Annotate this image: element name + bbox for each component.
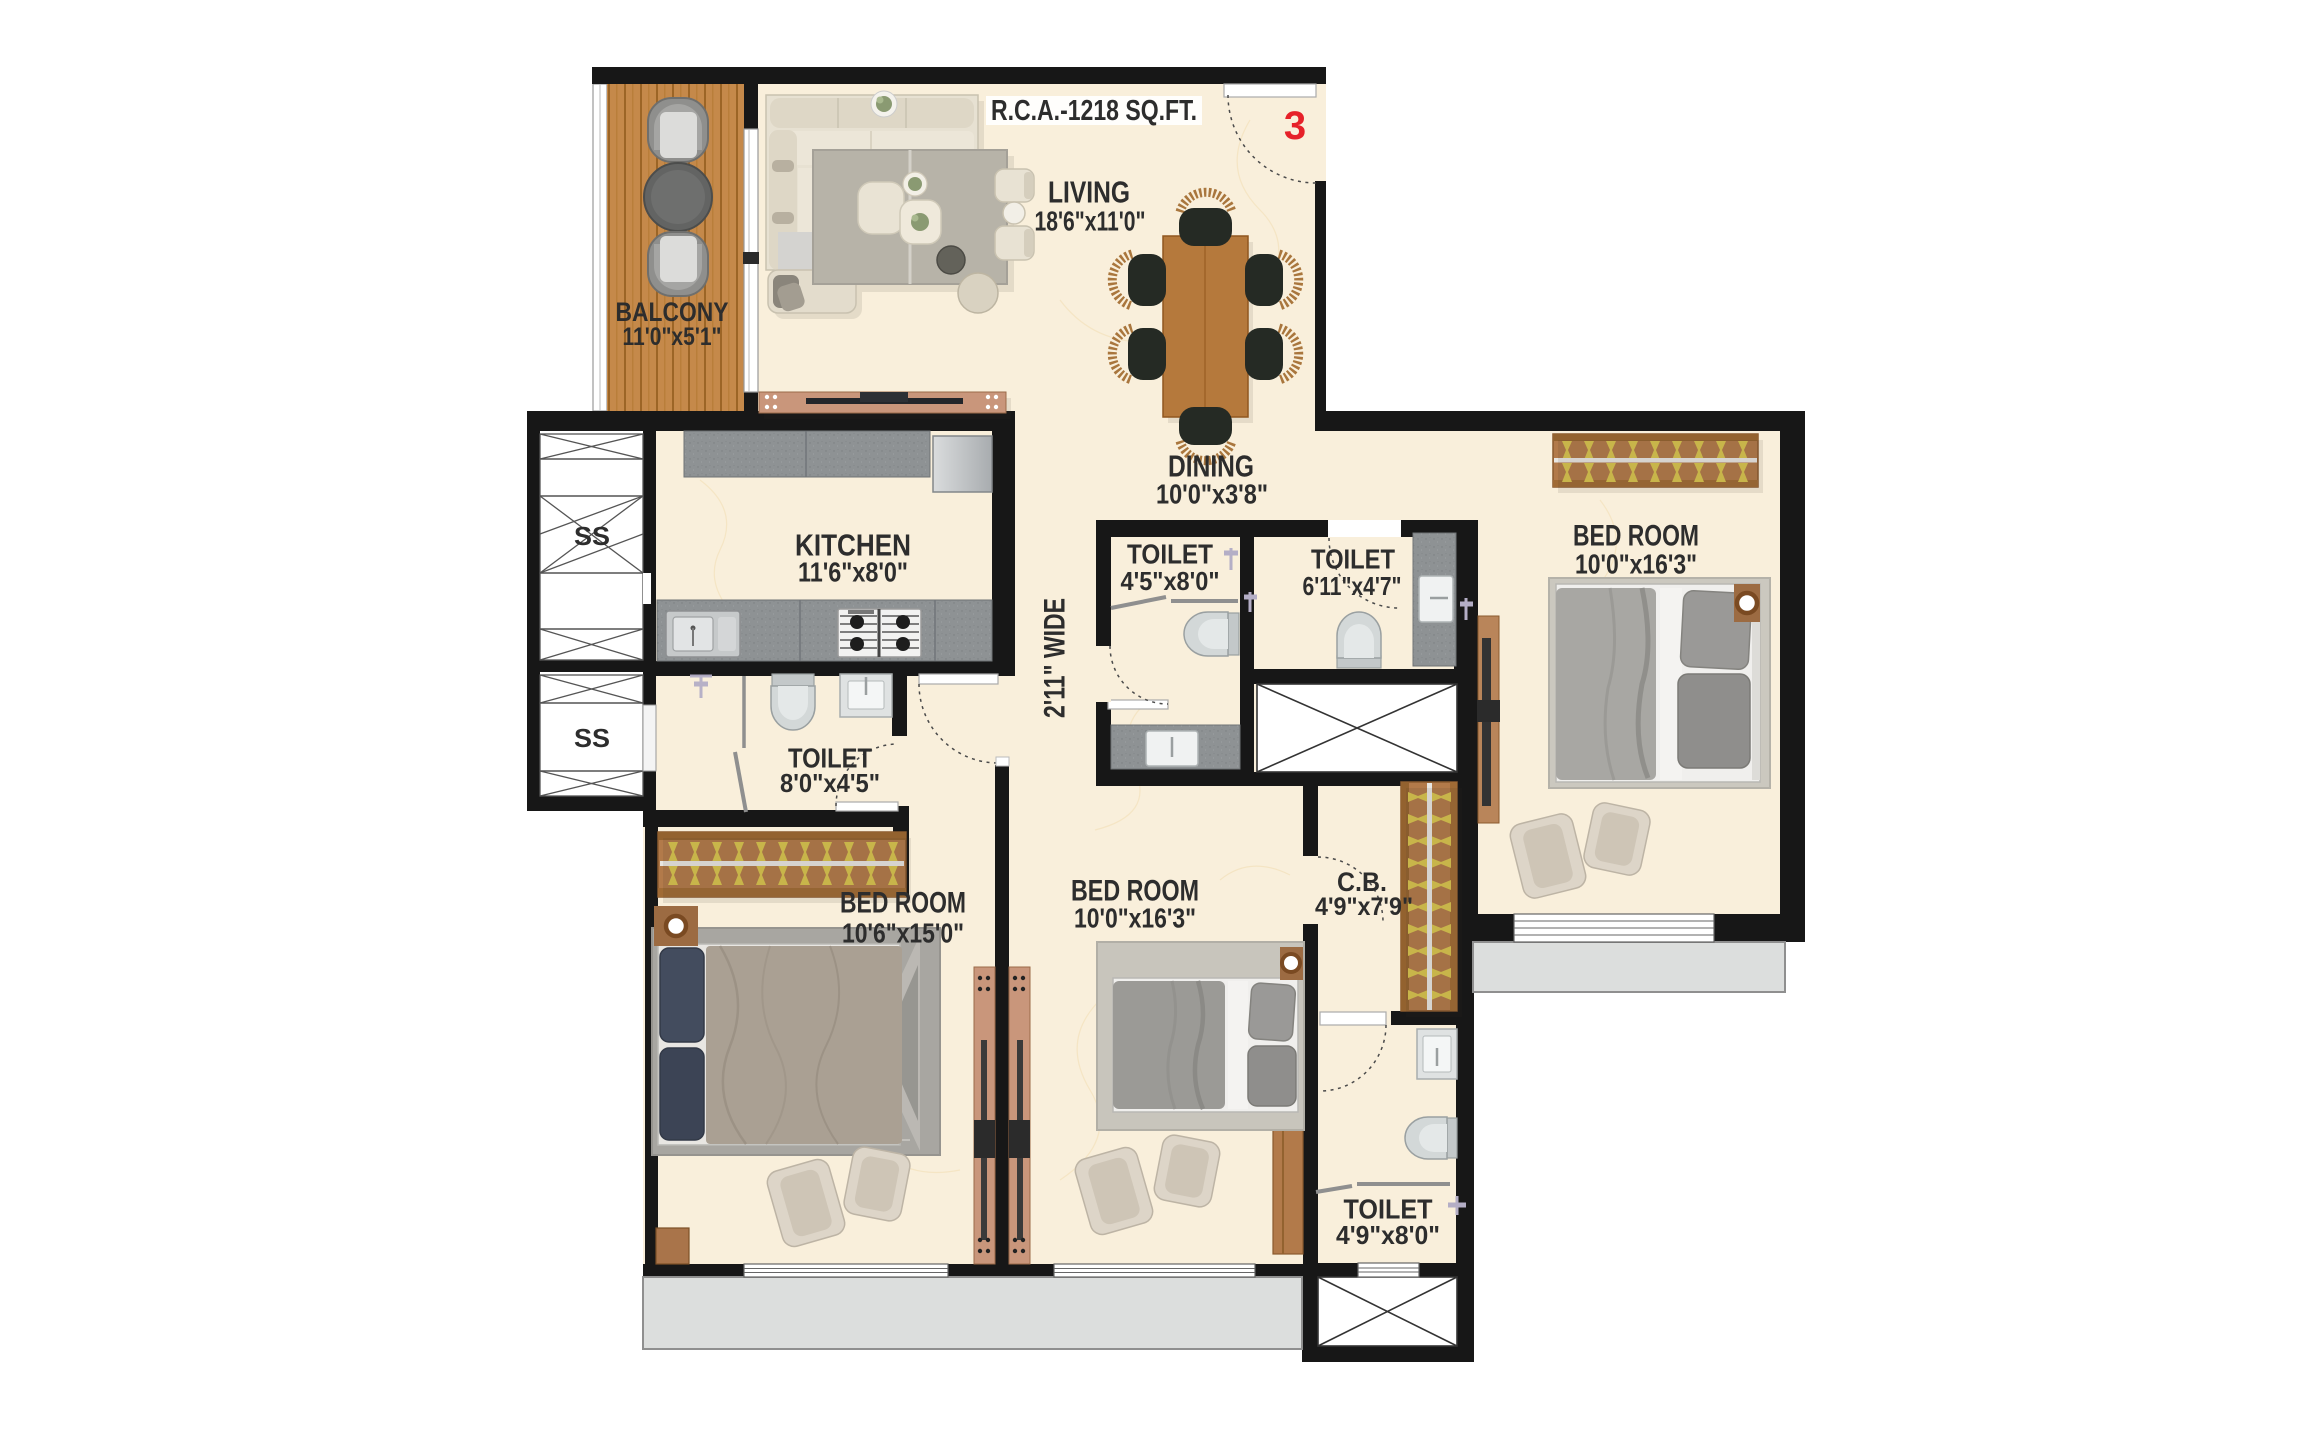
- svg-text:BED ROOM: BED ROOM: [840, 887, 966, 920]
- svg-text:10'0"x16'3": 10'0"x16'3": [1074, 903, 1196, 934]
- svg-text:4'5"x8'0": 4'5"x8'0": [1121, 566, 1220, 596]
- svg-text:R.C.A.-1218 SQ.FT.: R.C.A.-1218 SQ.FT.: [991, 95, 1197, 127]
- svg-text:6'11"x4'7": 6'11"x4'7": [1303, 571, 1402, 601]
- svg-text:10'0"x3'8": 10'0"x3'8": [1156, 479, 1268, 510]
- svg-text:4'9"x7'9": 4'9"x7'9": [1315, 893, 1413, 921]
- svg-text:SS: SS: [574, 723, 610, 753]
- svg-text:11'6"x8'0": 11'6"x8'0": [798, 557, 908, 588]
- svg-text:10'0"x16'3": 10'0"x16'3": [1575, 549, 1697, 580]
- svg-text:LIVING: LIVING: [1048, 175, 1130, 210]
- svg-text:SS: SS: [574, 521, 610, 551]
- svg-text:10'6"x15'0": 10'6"x15'0": [842, 918, 964, 949]
- svg-text:TOILET: TOILET: [1127, 539, 1213, 570]
- svg-text:3: 3: [1284, 104, 1306, 148]
- svg-text:4'9"x8'0": 4'9"x8'0": [1336, 1220, 1440, 1250]
- svg-text:11'0"x5'1": 11'0"x5'1": [623, 323, 722, 351]
- svg-text:8'0"x4'5": 8'0"x4'5": [780, 768, 880, 798]
- svg-text:18'6"x11'0": 18'6"x11'0": [1035, 206, 1146, 237]
- svg-text:2'11" WIDE: 2'11" WIDE: [1039, 598, 1072, 718]
- svg-text:TOILET: TOILET: [1311, 544, 1395, 575]
